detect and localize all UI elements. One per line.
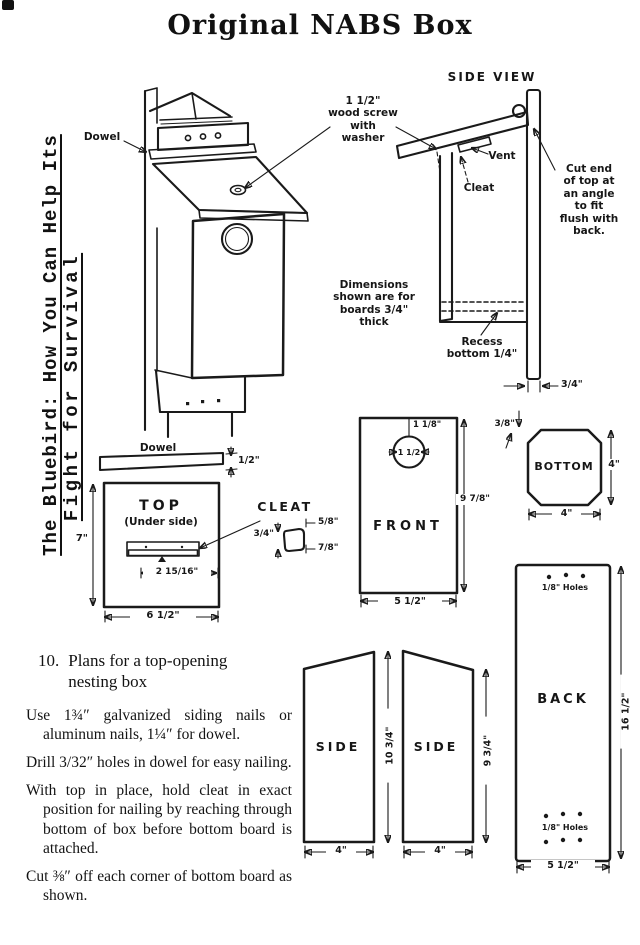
corner-cut-dim: 3/8" [487,419,515,430]
cut-end-note: Cut end of top at an angle to fit flush … [551,163,627,237]
perspective-drawing [145,88,308,437]
side-front-height-dim: 10 3/4" [384,709,395,783]
instruction-item: Drill 3/32″ holes in dowel for easy nail… [26,753,292,772]
wood-screw-note: 1 1/2" wood screw with washer [317,95,409,145]
side-left-label: SIDE [309,740,367,755]
instruction-heading: Plans for a top-opening nesting box [68,650,227,693]
top-depth-dim: 7" [70,533,88,545]
back-height-dim: 16 1/2" [620,675,631,749]
instruction-item: With top in place, hold cleat in exact p… [26,781,292,858]
board-thickness-note: Dimensions shown are for boards 3/4" thi… [316,279,432,329]
hole-diameter-dim: 1 1/2 [394,448,424,457]
front-piece-label: FRONT [369,519,447,534]
spine-text-line2: Fight for Survival [61,242,83,532]
cleat-top-dim: 5/8" [318,517,348,528]
side-left-width-dim: 4" [326,845,356,856]
top-width-dim: 6 1/2" [130,610,196,622]
scanned-plan-page: Original NABS Box The Bluebird: How You … [0,0,640,945]
front-width-dim: 5 1/2" [378,596,442,607]
back-piece-label: BACK [529,692,597,707]
cleat-offset-dim: 2 15/16" [143,567,211,578]
back-thickness-dim: 3/4" [561,379,597,390]
side-right-label: SIDE [407,740,465,755]
instruction-heading-row: 10. Plans for a top-opening nesting box [38,650,292,693]
cleat-label: Cleat [455,182,503,194]
dowel-callout: Dowel [80,131,124,143]
bottom-depth-dim: 4" [603,459,625,470]
dowel-thickness-dim: 1/2" [238,455,272,466]
side-back-height-dim: 9 3/4" [482,717,493,785]
top-underside-label: (Under side) [111,516,211,528]
back-bottom-holes-label: 1/8" Holes [527,823,603,832]
side-view-title: SIDE VIEW [446,70,538,84]
hole-offset-dim: 1 1/8" [413,420,451,430]
vent-label: Vent [482,150,522,162]
back-top-holes-label: 1/8" Holes [527,583,603,592]
spine-text-line1: The Bluebird: How You Can Help Its [40,125,62,565]
instruction-number: 10. [38,650,59,693]
recess-note: Recess bottom 1/4" [438,336,526,361]
back-width-dim: 5 1/2" [531,860,595,871]
bottom-width-dim: 4" [552,508,581,519]
top-piece-label: TOP [121,498,201,515]
instruction-item: Cut ⅜″ off each corner of bottom board a… [26,867,292,905]
dowel-piece-label: Dowel [128,442,188,454]
cleat-bottom-dim: 7/8" [318,543,348,554]
cleat-detail-label: CLEAT [249,500,321,515]
bottom-piece-label: BOTTOM [529,461,599,474]
front-height-dim: 9 7/8" [456,494,494,505]
instruction-item: Use 1¾″ galvanized siding nails or alumi… [26,706,292,744]
instructions-block: 10. Plans for a top-opening nesting box … [26,650,292,905]
cleat-height-dim: 3/4" [246,529,274,540]
front-drawing [360,418,464,607]
side-right-width-dim: 4" [425,845,455,856]
